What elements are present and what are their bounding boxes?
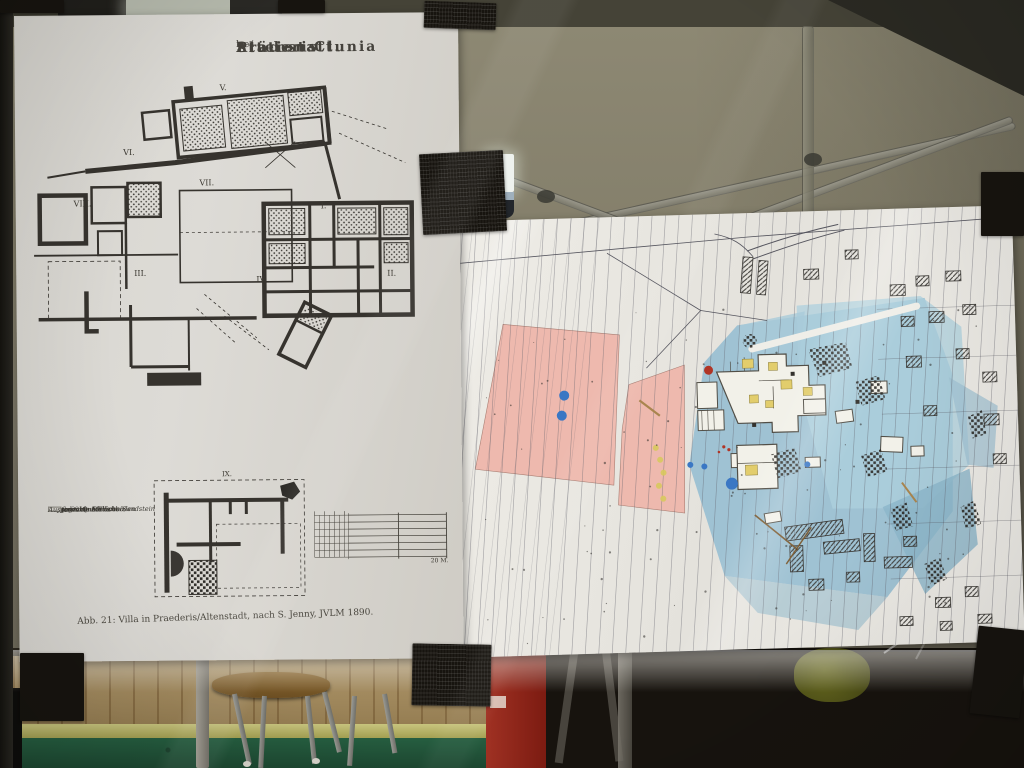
site-map-drawing	[446, 205, 1024, 658]
plan-legend: Aufgedeckte Mauern Gussmörtel Platten & …	[48, 503, 144, 504]
right-poster-site-map	[446, 205, 1024, 658]
svg-text:I.: I.	[321, 201, 327, 210]
tent-frame-joint	[537, 190, 555, 203]
svg-text:V.: V.	[219, 83, 227, 92]
tent-frame-joint	[804, 153, 822, 166]
figure-caption: Abb. 21: Villa in Praederis/Altenstadt, …	[77, 608, 373, 627]
window-frame-edge	[0, 0, 13, 768]
main-floor-plan: V. VI. VII. VIII. I. II. III. IV.	[27, 70, 444, 474]
red-cabinet-label	[490, 696, 506, 708]
left-poster-villa-plan: Station Clunia in Präderis bei Altenstat…	[14, 12, 464, 662]
secondary-floor-plan: IX.	[142, 465, 313, 606]
tape-bottom-right	[970, 626, 1024, 719]
photo-of-plans-on-glass: Station Clunia in Präderis bei Altenstat…	[0, 0, 1024, 768]
svg-text:II.: II.	[387, 269, 396, 278]
tape-center	[419, 150, 507, 235]
stool-foot	[243, 761, 251, 767]
scale-label: 20 M.	[431, 557, 449, 563]
secondary-plan-label: IX.	[222, 470, 232, 478]
svg-text:VI.: VI.	[122, 148, 135, 157]
svg-text:III.: III.	[134, 269, 146, 278]
pink-field-parcels	[471, 319, 689, 519]
scale-bar: 20 M.	[306, 502, 453, 563]
poster-title: Station Clunia in Präderis bei Altenstat…	[14, 38, 458, 42]
svg-text:VIII.: VIII.	[73, 199, 92, 208]
svg-text:VII.: VII.	[198, 178, 214, 187]
tape-bottom-center	[411, 643, 491, 706]
stool-foot	[312, 758, 320, 764]
title-part: Altenstatt.	[236, 39, 341, 56]
tape-right-edge	[981, 172, 1024, 236]
green-floor	[0, 738, 560, 768]
tape-left-poster-top	[424, 1, 497, 30]
tape-bottom-left	[20, 653, 84, 721]
tape-top-left	[0, 0, 64, 13]
tape-top-center	[278, 0, 325, 13]
svg-text:IV.: IV.	[256, 275, 266, 284]
